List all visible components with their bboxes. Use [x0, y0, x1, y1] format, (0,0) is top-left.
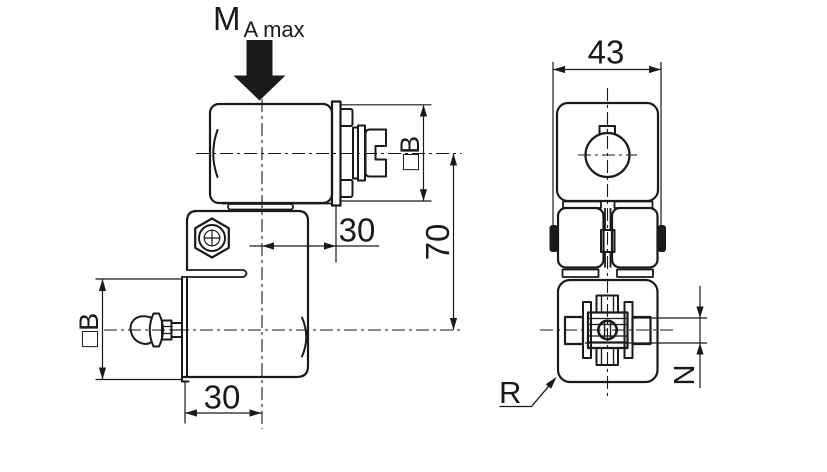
dim-sqb-top-text: □B [395, 136, 425, 170]
side-screw-tip-right [658, 225, 667, 252]
radius-annotation: R [499, 375, 557, 410]
load-annotation: M A max [213, 0, 305, 101]
dim-sqb-top-arrow-down [420, 189, 427, 201]
dim-43-arrow-right [649, 66, 661, 73]
load-arrow-icon [234, 40, 286, 101]
dim-offset-30-top: 30 [250, 207, 380, 263]
dim-70-text: 70 [419, 224, 456, 261]
load-label-sub: A max [244, 17, 305, 42]
dim-70-arrow-down [450, 318, 457, 330]
dim-square-b-bottom: □B [74, 279, 182, 380]
front-top-tab-upper [341, 109, 353, 126]
front-bottom-tube-arc [302, 318, 306, 357]
dim-43-text: 43 [588, 34, 625, 71]
dim-offset-30-bottom: 30 [185, 379, 262, 424]
front-top-tab-lower [341, 180, 353, 197]
dim-sqb-top-arrow-up [420, 105, 427, 117]
technical-drawing-canvas: M A max □B 70 30 [0, 0, 827, 472]
dim-sqb-bottom-text: □B [74, 313, 104, 347]
dim-30-bottom-text: 30 [204, 379, 241, 416]
hex-bolt-cross [204, 230, 221, 247]
dim-30-bottom-arrow-right [250, 409, 262, 416]
dim-30-top-text: 30 [339, 212, 376, 249]
dim-n-arrow-down [696, 307, 703, 319]
load-label-m: M [213, 0, 241, 37]
front-clamp-body [182, 211, 308, 377]
dim-sqb-bottom-arrow-down [99, 368, 106, 380]
side-jaw-right [612, 208, 658, 268]
dim-70-arrow-up [450, 154, 457, 166]
dim-30-top-arrow-right [324, 242, 336, 249]
dim-30-top-arrow-left [262, 242, 274, 249]
side-view: 43 [499, 34, 707, 411]
radius-label: R [499, 375, 521, 410]
front-view: M A max □B 70 30 [74, 0, 462, 429]
side-jaw-left [558, 208, 604, 268]
clamp-drawing: M A max □B 70 30 [0, 0, 827, 472]
front-junction-plate [228, 204, 293, 210]
dim-sqb-bottom-arrow-up [99, 279, 106, 291]
side-junction-bottom-left [563, 270, 599, 278]
dim-30-bottom-arrow-left [185, 409, 197, 416]
front-flex-slit [182, 270, 247, 277]
side-screw-tip-left [550, 225, 559, 252]
dim-n-text: N [669, 365, 701, 386]
dim-n-arrow-up [696, 343, 703, 355]
dim-height-70: 70 [419, 154, 457, 331]
side-junction-bottom-right [617, 270, 653, 278]
hex-bolt [195, 219, 229, 258]
dim-43-arrow-left [553, 66, 565, 73]
dim-square-b-top: □B [341, 105, 432, 201]
dim-sqb-bottom-extension-lines [96, 279, 183, 380]
